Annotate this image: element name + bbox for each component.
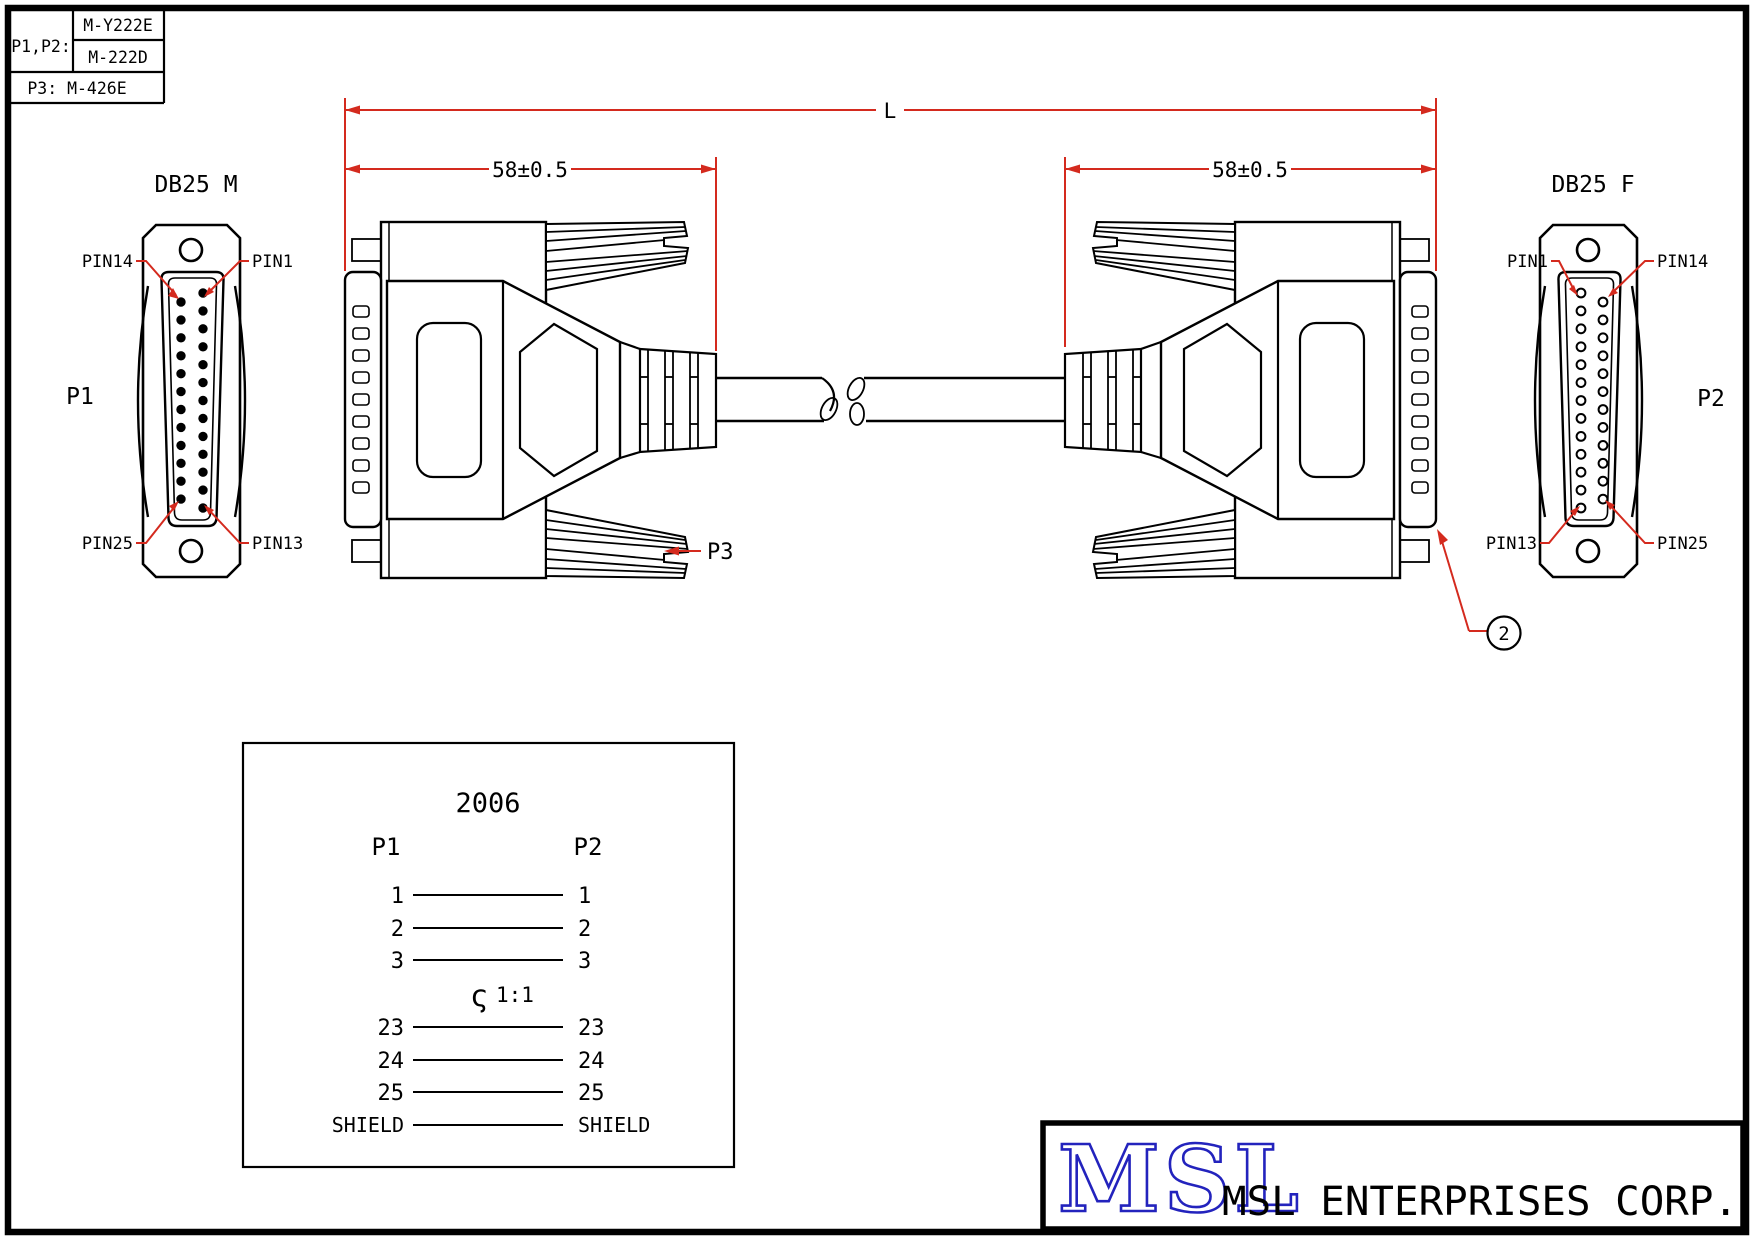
pin-dot [199,343,207,351]
dim-label-left-58: 58±0.5 [492,158,568,182]
pin-dot [177,459,185,467]
wiring-header-p1: P1 [372,833,401,861]
cable-break-ellipse [844,375,868,403]
right-face-label-pin25: PIN25 [1657,534,1708,554]
cable [716,375,1065,425]
dim-label-L: L [884,99,897,123]
continuation-symbol: ς [470,979,488,1014]
pin-dot [177,298,185,306]
db25-female-face-view: DB25 F P2 PIN1 PIN14 PIN13 PIN25 [1486,172,1725,577]
continuation-note: 1:1 [496,983,534,1007]
wiring-header-p2: P2 [574,833,603,861]
wire-label: 1 [578,884,591,909]
left-face-label-pin14: PIN14 [82,252,133,272]
right-face-label-pin14: PIN14 [1657,252,1708,272]
pin-dot [199,307,207,315]
pin-dot [199,468,207,476]
dim-label-right-58: 58±0.5 [1212,158,1288,182]
wire-label: 1 [391,884,404,909]
pin-dot [177,387,185,395]
pin-dot [199,378,207,386]
table-p3-part: P3: M-426E [27,79,126,98]
wire-label: 2 [391,917,404,942]
wire-label: 2 [578,917,591,942]
pin-dot [177,477,185,485]
table-part-top: M-Y222E [83,16,153,35]
pin-dot [199,450,207,458]
balloon-number: 2 [1498,623,1509,645]
wire-label: 23 [378,1016,405,1041]
part-number-table: P1,P2: M-Y222E M-222D P3: M-426E [8,8,164,103]
wire-label: 24 [378,1049,405,1074]
left-face-title: DB25 M [154,172,237,198]
pin-dot [177,370,185,378]
pin-dot [199,396,207,404]
pin-dot [177,405,185,413]
wire-label: 25 [378,1081,405,1106]
molded-connector-right [1065,222,1436,578]
callout-p3-label: P3 [707,540,734,565]
table-part-bottom: M-222D [88,48,148,67]
table-connector-refs: P1,P2: [11,37,71,56]
pin-dot [177,334,185,342]
left-face-label-pin13: PIN13 [252,534,303,554]
wire-label: 23 [578,1016,605,1041]
wire-label: 24 [578,1049,605,1074]
pin-dot [199,486,207,494]
company-name: MSL ENTERPRISES CORP. [1222,1179,1738,1225]
pin-dot [177,441,185,449]
wire-label: SHIELD [578,1113,650,1137]
left-face-label-pin25: PIN25 [82,534,133,554]
pin-dot [177,316,185,324]
sheet-border [8,8,1746,1232]
right-face-ref: P2 [1697,386,1725,412]
wire-label: 25 [578,1081,605,1106]
pin-dot [199,361,207,369]
wire-label: 3 [391,949,404,974]
cable-break-ellipse [817,395,841,423]
wiring-rows: 1 1 2 2 3 3 ς 1:1 23 23 24 24 25 25 SHIE… [332,884,651,1137]
cable-break-ellipse [850,403,864,425]
pin-dot [177,423,185,431]
left-face-label-pin1: PIN1 [252,252,293,272]
cable-break-curve-left [822,378,834,411]
pin-dot [177,352,185,360]
right-face-title: DB25 F [1551,172,1634,198]
drawing-sheet: P1,P2: M-Y222E M-222D P3: M-426E DB25 M … [0,0,1754,1240]
db25-male-face-view: DB25 M P1 PIN14 PIN1 PIN25 PIN13 [66,172,303,577]
drawing-canvas: P1,P2: M-Y222E M-222D P3: M-426E DB25 M … [0,0,1754,1240]
wiring-diagram: 2006 P1 P2 1 1 2 2 3 3 ς 1:1 23 23 24 24… [243,743,734,1167]
wire-label: 3 [578,949,591,974]
pin-dot [199,325,207,333]
left-face-ref: P1 [66,384,94,410]
molded-connector-left [345,222,716,578]
pin-dot [199,432,207,440]
wiring-title: 2006 [455,788,520,819]
right-face-label-pin13: PIN13 [1486,534,1537,554]
right-face-label-pin1: PIN1 [1507,252,1548,272]
title-block: MSL MSL ENTERPRISES CORP. [1043,1123,1743,1233]
pin-dot [199,414,207,422]
wire-label: SHIELD [332,1113,404,1137]
